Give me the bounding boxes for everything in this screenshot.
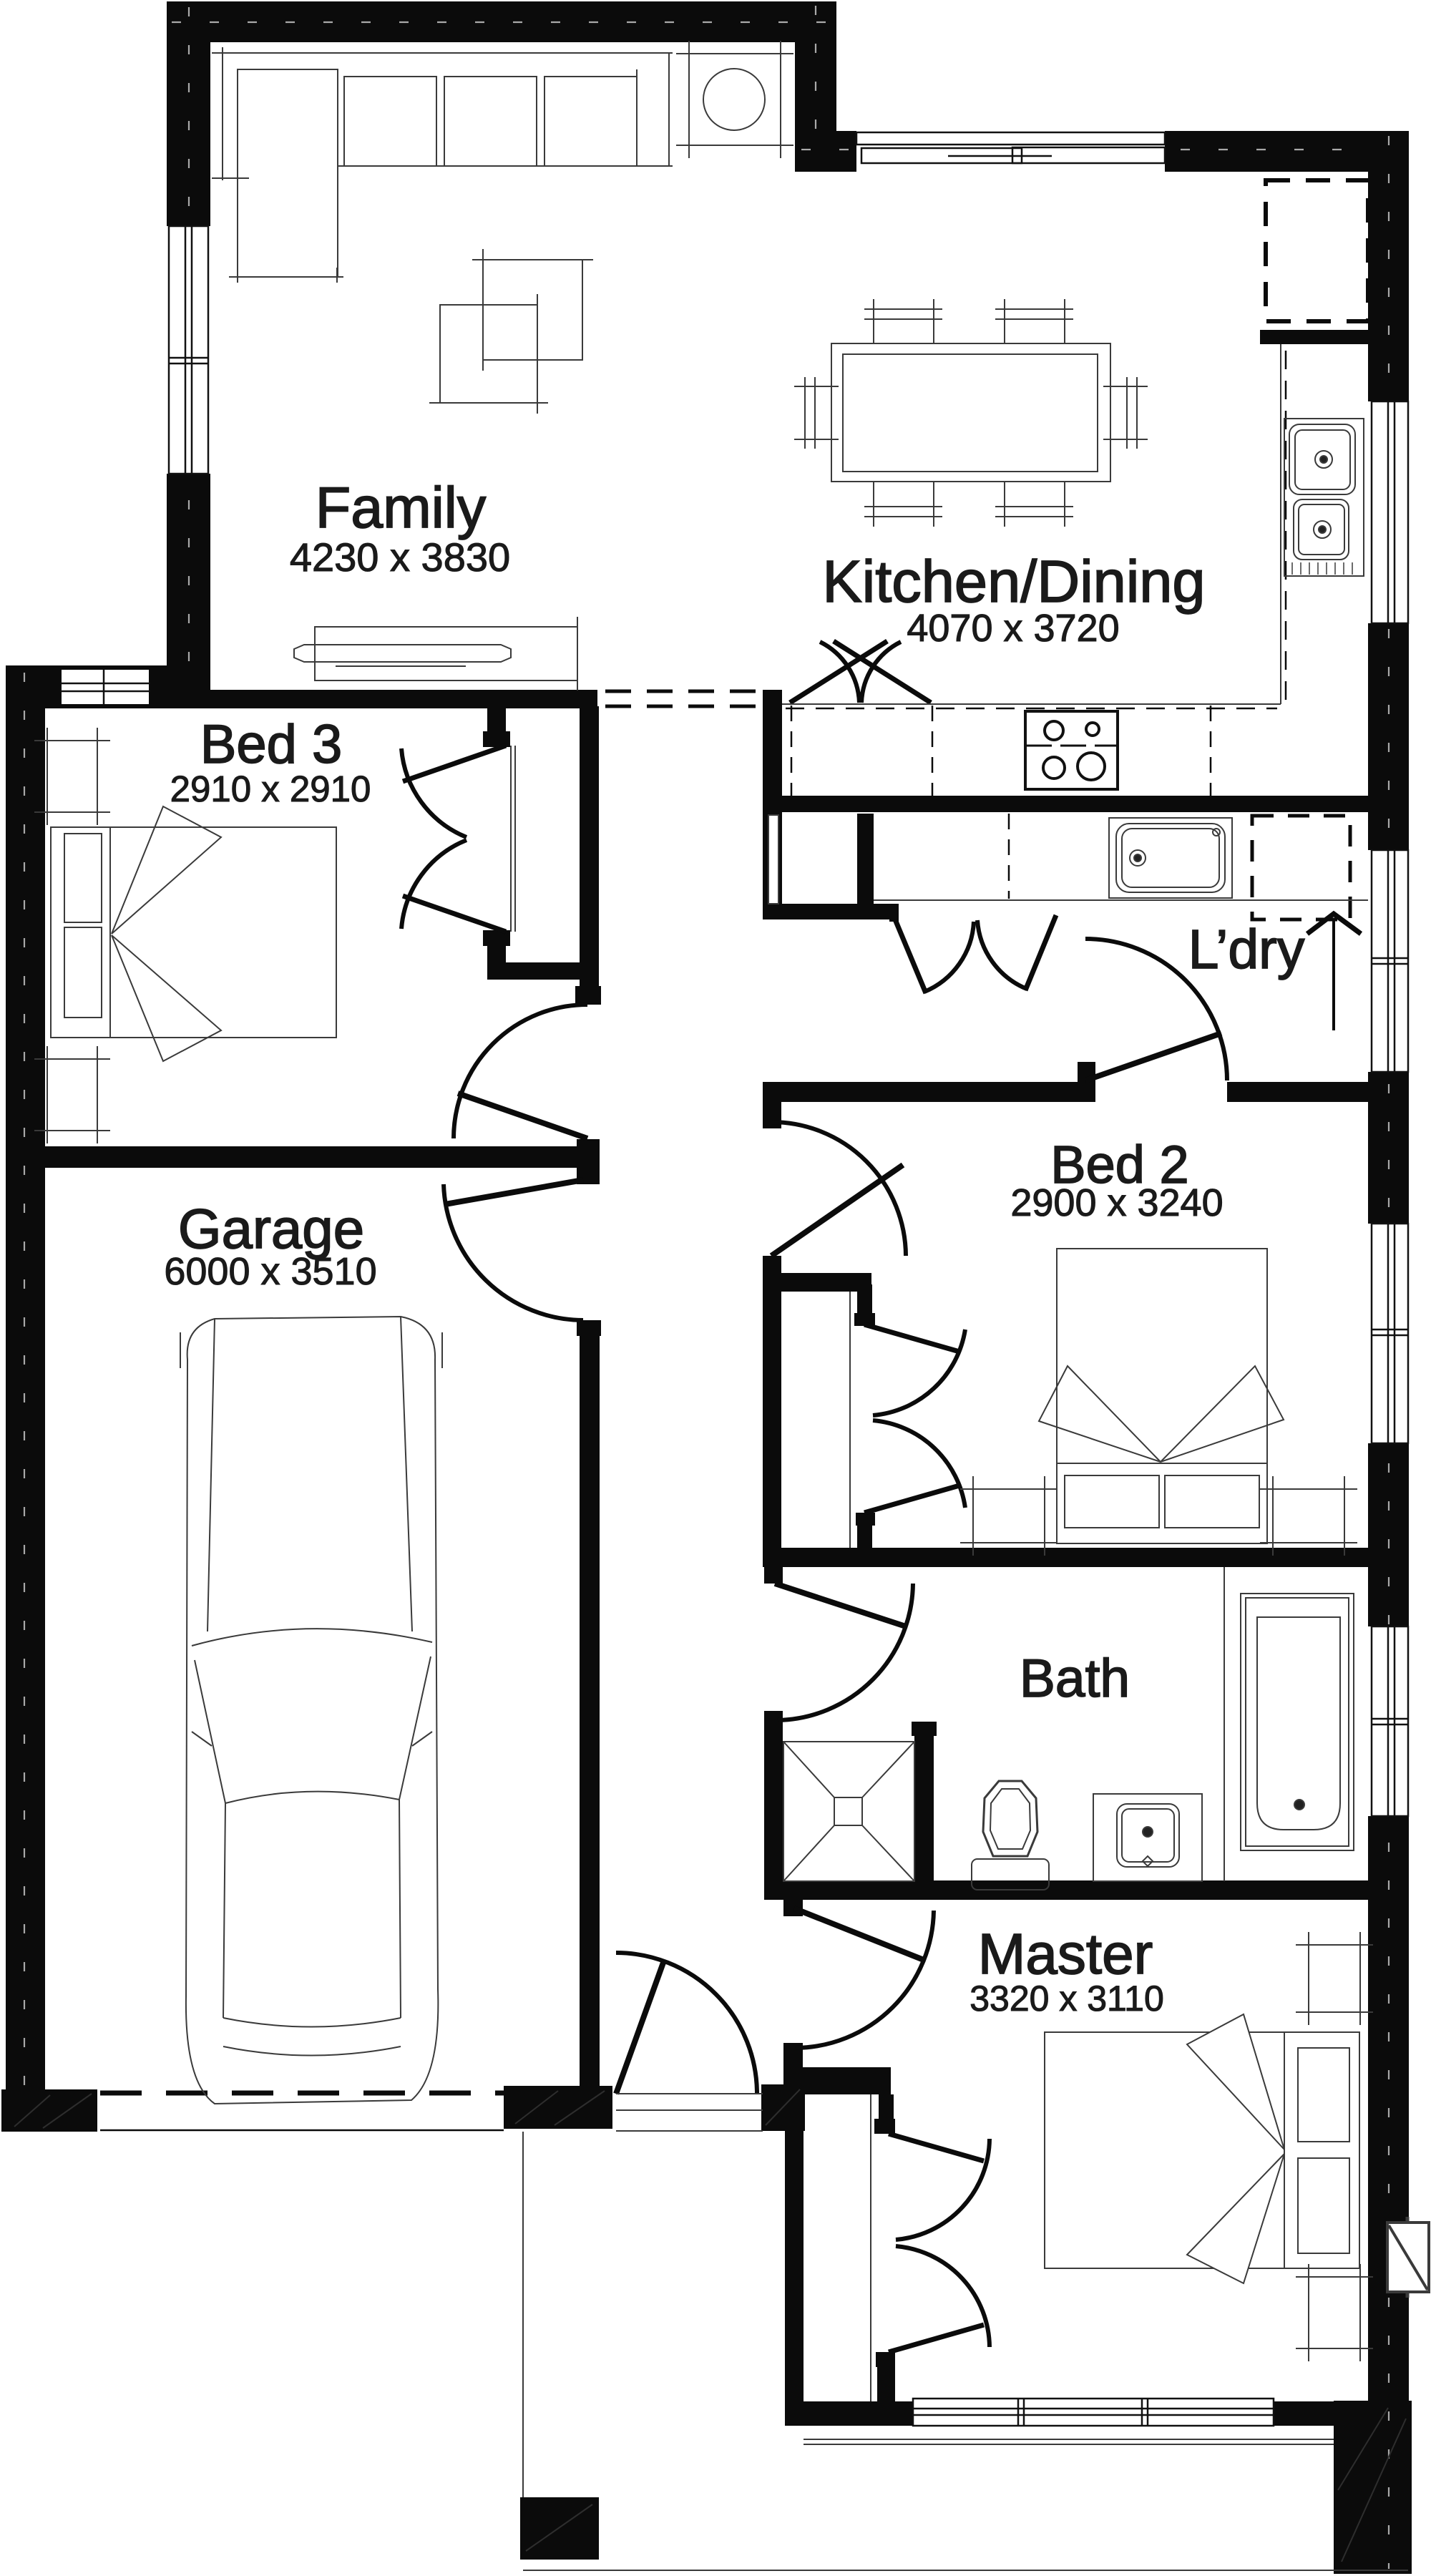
svg-text:2910 x 2910: 2910 x 2910 [170,769,371,809]
svg-text:6000 x 3510: 6000 x 3510 [164,1250,376,1293]
svg-text:Master: Master [978,1922,1153,1986]
svg-text:Family: Family [316,476,487,540]
svg-text:Bed 3: Bed 3 [200,714,343,775]
svg-text:Kitchen/Dining: Kitchen/Dining [822,548,1205,615]
svg-text:3320 x 3110: 3320 x 3110 [970,1979,1164,2019]
svg-text:L’dry: L’dry [1188,919,1305,980]
svg-text:4070 x 3720: 4070 x 3720 [907,607,1119,650]
svg-text:2900 x 3240: 2900 x 3240 [1010,1181,1223,1224]
svg-text:4230 x 3830: 4230 x 3830 [290,535,510,580]
svg-text:Bath: Bath [1020,1648,1130,1708]
